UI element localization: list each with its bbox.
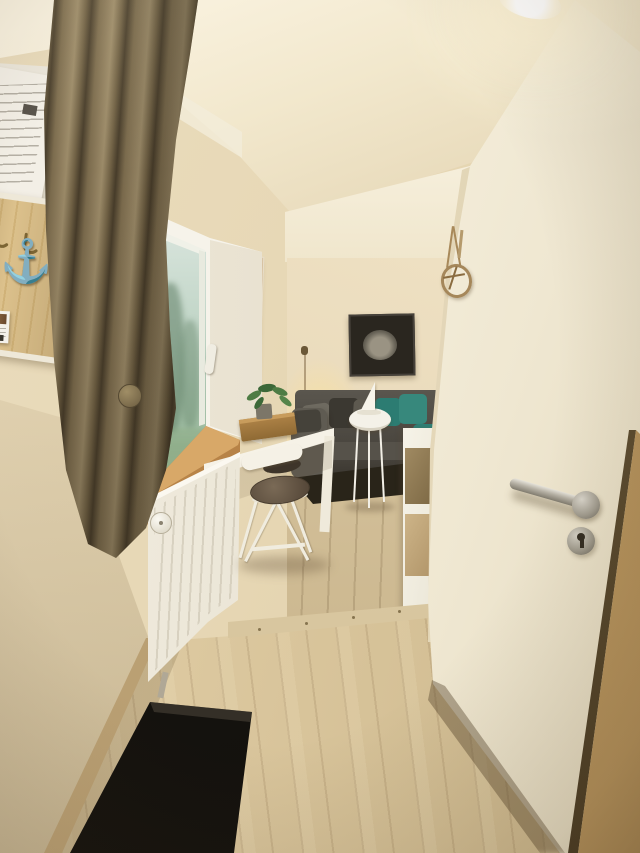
handle-rosette: [572, 491, 600, 519]
chair-shadow: [238, 556, 330, 574]
info-sheet-text: [0, 83, 50, 184]
threshold-screw: [352, 616, 355, 619]
anchor-icon: ⚓: [0, 239, 54, 284]
keyhole-plate: [567, 527, 595, 555]
hallway-photo: ⚓: [0, 0, 640, 853]
curtain-tieback-knob: [118, 384, 142, 408]
threshold-screw: [258, 628, 261, 631]
side-table-leg: [368, 428, 370, 508]
boat-picture-frame: [348, 313, 415, 376]
radiator-valve: [150, 512, 172, 534]
valve-dial: [159, 521, 163, 525]
threshold-screw: [398, 610, 401, 613]
boat-image: [363, 330, 398, 361]
info-sheet-barcode: [22, 104, 38, 116]
tree-silhouette: [180, 320, 200, 428]
sailboat-ornament: [361, 382, 375, 410]
teal-pillow-2: [399, 394, 427, 424]
qr-code-icon: [0, 335, 4, 341]
info-card: [0, 310, 10, 344]
info-card-photo: [0, 313, 7, 324]
side-table-shadow: [345, 502, 395, 512]
keyhole-slot: [580, 539, 584, 548]
sailboat-hull: [357, 410, 381, 415]
threshold-screw: [305, 622, 308, 625]
